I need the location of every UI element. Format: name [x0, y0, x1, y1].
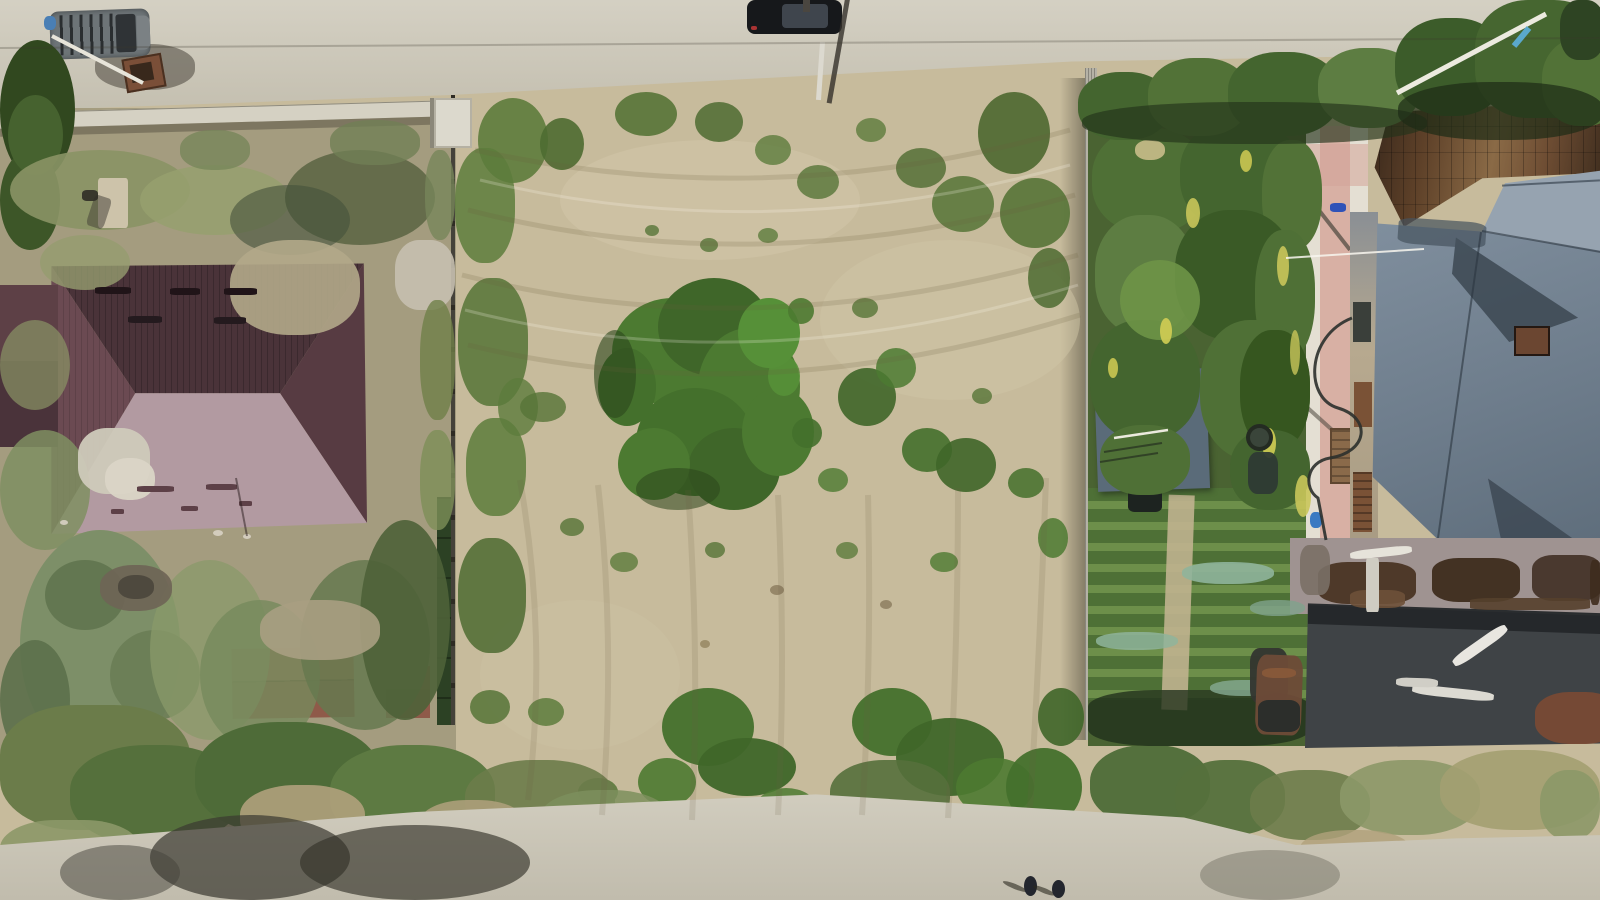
- walkway-pink-top: [1306, 144, 1368, 186]
- weed-patch: [520, 392, 566, 422]
- weed-patch: [930, 552, 958, 572]
- facade-window: [1353, 302, 1371, 342]
- blue-bucket: [1310, 512, 1322, 528]
- stage: [0, 0, 1600, 900]
- right-white-fence: [1088, 99, 1408, 124]
- weed-patch: [695, 102, 743, 142]
- annex-roof-upper: [0, 285, 58, 361]
- weed-patch: [645, 225, 659, 236]
- facade-balcony: [1354, 382, 1372, 427]
- dirt-light-patch: [480, 600, 680, 750]
- tractor-track-vertical: [520, 478, 1046, 820]
- pedestrian: [1052, 880, 1065, 898]
- weed-patch: [700, 238, 718, 252]
- brown-shed-large: [231, 647, 354, 719]
- weed-patch: [1008, 468, 1044, 498]
- weed-patch: [478, 98, 548, 183]
- weed-patch: [978, 92, 1050, 174]
- large-bush: [598, 348, 656, 426]
- weed-patch: [852, 688, 932, 756]
- lot-left-fence: [451, 95, 455, 725]
- weed-patch: [498, 378, 538, 436]
- dry-grass: [1440, 750, 1600, 830]
- dry-grass: [1540, 770, 1600, 840]
- weed-patch: [932, 176, 994, 232]
- dirt-light-patch: [560, 140, 860, 260]
- large-bush: [698, 328, 800, 446]
- weed-patch: [852, 298, 878, 318]
- weed-patch: [902, 428, 952, 472]
- weed-patch: [836, 542, 858, 559]
- vegetable-rows: [1088, 488, 1310, 700]
- lot-right-fence-shadow: [1060, 78, 1085, 740]
- suv-hood: [136, 15, 150, 49]
- weed-patch: [788, 298, 814, 324]
- weed-patch: [818, 468, 848, 492]
- weed-patch: [540, 118, 584, 170]
- courtyard-pavers: [1290, 538, 1600, 614]
- gray-suv: [49, 8, 151, 59]
- large-bush: [742, 388, 814, 476]
- large-bush: [688, 428, 780, 510]
- weed-patch: [662, 688, 754, 766]
- weed-patch: [792, 418, 822, 448]
- right-house-facade: [1350, 212, 1378, 562]
- left-house-roof: [45, 258, 367, 534]
- stone: [700, 640, 710, 648]
- blue-pole-object: [1330, 203, 1346, 212]
- tractor-track-highlights: [465, 165, 1078, 342]
- weed-patch: [610, 552, 638, 572]
- large-bush: [658, 278, 770, 376]
- weed-patch: [936, 438, 996, 492]
- weed-patch: [458, 278, 528, 406]
- facade-balcony: [1353, 472, 1372, 532]
- chimney: [1514, 326, 1550, 356]
- suv-windshield: [115, 14, 136, 53]
- blue-object: [44, 16, 56, 30]
- weed-patch: [755, 135, 791, 165]
- tractor-track-arcs: [462, 130, 1080, 374]
- weed-patch: [768, 356, 800, 396]
- suv-roof-rack: [59, 13, 115, 55]
- weed-patch: [838, 368, 896, 426]
- garden-shed-entry: [1128, 486, 1162, 512]
- weed-patch: [972, 388, 992, 404]
- weed-patch: [896, 148, 946, 188]
- dry-grass: [1340, 760, 1480, 835]
- bush-shadow: [594, 330, 636, 418]
- black-car: [747, 0, 842, 34]
- bottom-road: [0, 790, 1600, 900]
- weed-patch: [578, 778, 618, 806]
- stone: [770, 585, 784, 595]
- weed-patch: [638, 758, 696, 806]
- large-bush: [612, 298, 734, 406]
- weed-patch: [466, 418, 526, 516]
- weed-patch: [896, 718, 1004, 796]
- weed-patch: [458, 538, 526, 653]
- walkway-pink-band: [1320, 126, 1350, 562]
- weed-patch: [560, 518, 584, 536]
- weed-patch: [705, 542, 725, 558]
- large-bush: [636, 388, 754, 496]
- weed-patch: [470, 690, 510, 724]
- trailer: [121, 53, 166, 93]
- bush-shadow: [636, 468, 720, 510]
- weed-patch: [856, 118, 886, 142]
- car-taillight: [751, 26, 757, 30]
- annex-roof-lower: [0, 361, 58, 447]
- corner-gate-panel: [430, 98, 472, 148]
- verge-shrub: [1250, 770, 1370, 840]
- garden-shed-roof: [1094, 368, 1210, 492]
- weed-patch: [698, 738, 796, 796]
- weed-patch: [528, 698, 564, 726]
- trailer-bed: [129, 62, 154, 84]
- weed-patch: [876, 348, 916, 388]
- garden-bottom-shadow: [1088, 690, 1310, 746]
- brown-shed-small: [386, 666, 430, 718]
- pole-stub: [803, 0, 810, 12]
- weed-patch: [615, 92, 677, 136]
- large-bush: [618, 428, 690, 500]
- large-bush: [738, 298, 800, 368]
- dirt-light-patch: [820, 240, 1080, 400]
- weed-patch: [455, 148, 515, 263]
- stone: [880, 600, 892, 609]
- weed-patch: [797, 165, 839, 199]
- weed-patch: [758, 228, 778, 243]
